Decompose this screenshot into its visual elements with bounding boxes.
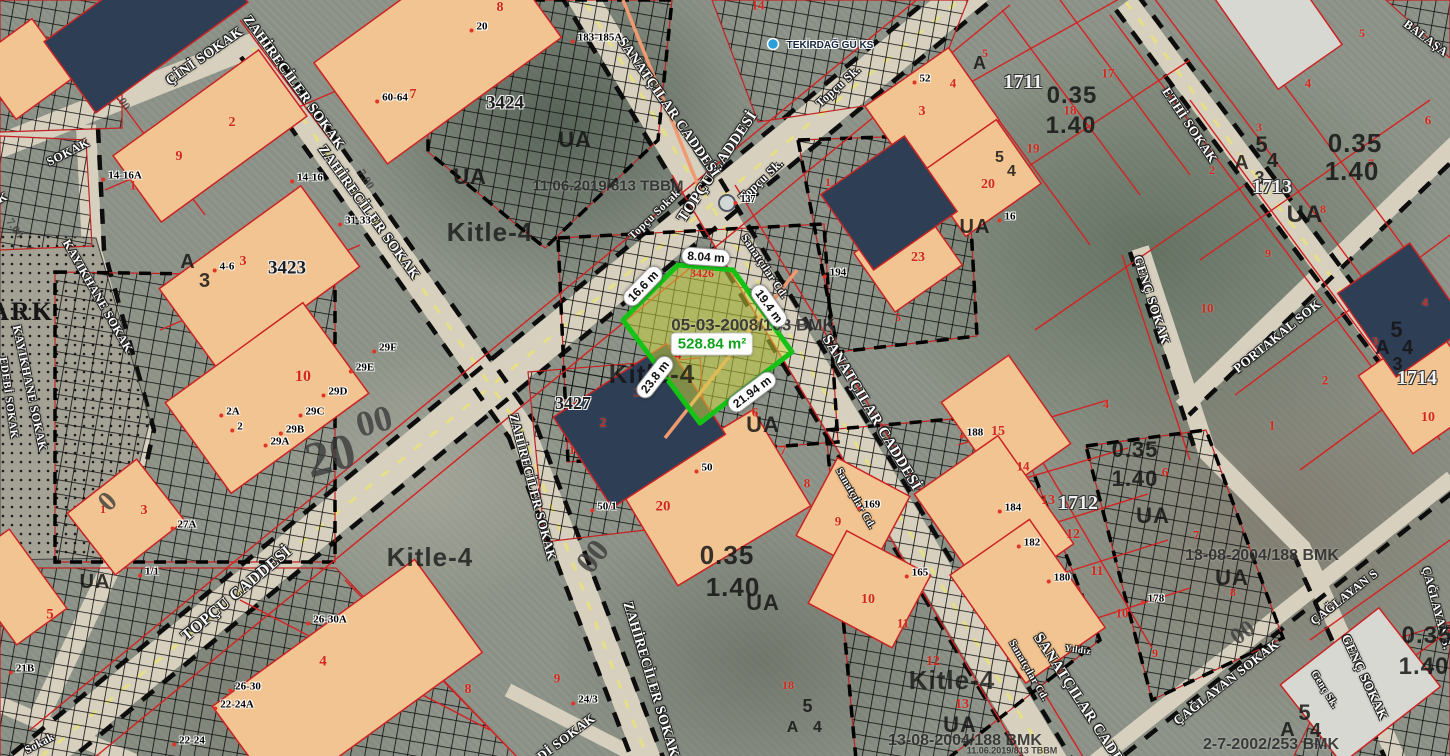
parcel-number: 5 (895, 311, 901, 323)
zoning-label: 1.40 (706, 574, 761, 600)
house-number: 2A (226, 407, 239, 418)
house-number: 50/1 (597, 502, 617, 513)
house-number: 22-24A (220, 700, 254, 711)
block-number: 3423 (268, 259, 306, 278)
parcel-number: 11 (1090, 565, 1103, 579)
parcel-number: 6 (1425, 114, 1432, 127)
zoning-label: A (1234, 153, 1249, 173)
zoning-label: UA (960, 217, 991, 237)
house-number: 137 (741, 195, 756, 205)
approval-annotation: 2-7-2002/253 BMK (1203, 737, 1339, 753)
parcel-number: 5 (1359, 27, 1365, 39)
house-number: 29D (329, 387, 348, 398)
parcel-number: 9 (176, 150, 183, 164)
zoning-label: 0.35 (1112, 439, 1159, 461)
parcel-number: 13 (1041, 494, 1055, 508)
house-number: 52 (920, 74, 931, 85)
house-number: 29E (356, 363, 374, 374)
house-number: 165 (912, 568, 929, 579)
parcel-number: 3 (240, 255, 247, 269)
house-number: 4-6 (220, 262, 235, 273)
poi-label: TEKİRDAĞ GÜ KS (787, 41, 874, 51)
parcel-number: 10 (295, 369, 311, 385)
block-number: 1714 (1397, 368, 1437, 388)
house-number: 60-64 (382, 93, 408, 104)
parcel-number: 8 (497, 1, 504, 15)
zoning-label: UA (80, 572, 111, 592)
house-number: 29C (306, 407, 325, 418)
zoning-label: A (1375, 338, 1390, 358)
kitle-label: Kitle-4 (447, 219, 533, 245)
house-number: 29A (271, 437, 290, 448)
parcel-number: 14 (1017, 460, 1030, 473)
house-number: 169 (864, 500, 881, 511)
parcel-number: 1 (825, 176, 831, 188)
kitle-label: Kitle-4 (909, 667, 995, 693)
zoning-label: 1.40 (1325, 158, 1380, 184)
block-number: 1713 (1252, 177, 1292, 197)
parcel-number: 10 (1201, 302, 1214, 315)
approval-annotation: 05-03-2008/103 BMK (671, 317, 834, 334)
zoning-label: 1.40 (1112, 468, 1159, 490)
parcel-number: 4 (319, 655, 327, 670)
house-number: 50 (702, 463, 713, 474)
zoning-label: 5 (802, 697, 813, 715)
house-number: 178 (1148, 594, 1165, 605)
zoning-label: UA (746, 414, 780, 436)
zoning-label: UA (1287, 203, 1324, 227)
parcel-number: 20 (981, 178, 995, 192)
parcel-number: 8 (465, 683, 472, 697)
zoning-label: 4 (813, 720, 823, 736)
zoning-label: 0.35 (1328, 130, 1383, 156)
parcel-number: 10 (1421, 411, 1435, 425)
poi-blue-dot-icon[interactable] (768, 39, 779, 50)
parcel-area-badge: 528.84 m² (672, 334, 752, 355)
parcel-number: 11 (897, 617, 909, 630)
parcel-number: 2 (600, 416, 607, 429)
zoning-label: UA (1136, 505, 1170, 527)
zoning-label: 0.35 (1402, 624, 1450, 648)
parcel-number: 6 (1162, 466, 1169, 479)
parcel-number: 15 (991, 425, 1005, 439)
parcel-number: 9 (1152, 647, 1158, 659)
zoning-label: 5 (995, 150, 1005, 166)
parcel-number: 7 (780, 444, 787, 457)
parcel-number: 4 (1422, 296, 1428, 308)
parcel-number: 12 (1066, 528, 1080, 542)
cadastral-map-canvas[interactable]: ÇİNİ SOKAKZAHİRECİLER SOKAKZAHİRECİLER S… (0, 0, 1450, 756)
block-number: 1712 (1058, 493, 1098, 513)
house-number: 16 (1005, 212, 1016, 223)
parcel-number: 3426 (690, 267, 714, 279)
house-number: 182 (1024, 538, 1041, 549)
parcel-number: 19 (1027, 142, 1040, 155)
zoning-label: UA (1215, 567, 1249, 589)
house-number: 188 (967, 428, 984, 439)
parcel-number: 9 (835, 515, 842, 528)
parcel-number: 23 (911, 251, 925, 265)
parcel-number: 7 (410, 88, 417, 102)
house-number: 194 (830, 268, 847, 279)
parcel-number: 2 (1322, 374, 1329, 387)
house-number: 20 (477, 22, 488, 33)
block-number: 3424 (486, 94, 524, 113)
parcel-number: 7 (1193, 529, 1200, 542)
house-number: 14-16 (297, 173, 323, 184)
parcel-number: 10 (1116, 607, 1129, 620)
zoning-label: A (180, 252, 195, 272)
block-number: 1711 (1004, 72, 1043, 92)
zoning-label: A (787, 720, 800, 736)
zoning-label: 1.40 (1046, 114, 1097, 138)
house-number: 27A (178, 520, 197, 531)
parcel-number: 10 (861, 593, 875, 607)
approval-annotation: 11.06.2019/813 TBBM (967, 747, 1058, 756)
measurement-label: 8.04 m (681, 246, 731, 267)
zoning-label: 4 (1007, 164, 1017, 180)
parcel-number: 9 (1265, 247, 1271, 259)
house-number: 184 (1005, 503, 1022, 514)
zoning-label: 4 (1402, 338, 1414, 358)
house-number: 14-16A (108, 171, 142, 182)
zoning-label: 3 (199, 271, 211, 291)
zoning-label: UA (453, 166, 487, 188)
zoning-label: 0.35 (700, 542, 755, 568)
house-number: 26-30 (235, 682, 261, 693)
parcel-number: 4 (950, 77, 957, 90)
house-number: 180 (1054, 573, 1071, 584)
parcel-number: 3 (919, 105, 926, 119)
parcel-number: 2 (1209, 164, 1215, 176)
house-number: 21B (16, 664, 34, 675)
house-number: 26-30A (313, 615, 347, 626)
approval-annotation: 11.06.2019/813 TBBM (533, 179, 684, 194)
zoning-label: 0.35 (1047, 84, 1098, 108)
block-number: 3427 (555, 394, 591, 412)
parcel-number: 5 (46, 608, 54, 623)
zoning-label: 1.40 (1399, 655, 1450, 679)
parcel-number: 13 (955, 698, 969, 712)
parcel-number: 9 (554, 672, 561, 685)
parcel-number: 1 (1269, 419, 1276, 432)
parcel-number: 2 (229, 116, 236, 130)
map-base-layer (0, 0, 1450, 756)
park-label: PARK (0, 299, 54, 325)
house-number: 183-185A (578, 33, 623, 44)
parcel-number: 20 (656, 500, 671, 515)
house-number: 31-33 (345, 216, 371, 227)
house-number: 2 (237, 422, 243, 433)
zoning-label: UA (558, 129, 592, 151)
house-number: 24/3 (578, 695, 598, 706)
parcel-number: 17 (1102, 67, 1115, 80)
zoning-label: A (973, 54, 987, 72)
house-number: 29F (379, 343, 397, 354)
zoning-label: 4 (1267, 151, 1279, 171)
parcel-number: 14 (752, 0, 765, 12)
parcel-number: 1 (569, 444, 575, 456)
parcel-number: 4 (1305, 77, 1312, 90)
house-number: 22-24 (179, 736, 205, 747)
approval-annotation: 13-08-2004/188 BMK (1185, 548, 1339, 564)
house-number: 1/1 (145, 567, 159, 578)
parcel-number: 4 (1103, 398, 1109, 410)
parcel-number: 18 (782, 679, 794, 691)
parcel-number: 8 (804, 477, 811, 490)
kitle-label: Kitle-4 (387, 544, 473, 570)
parcel-number: 3 (141, 504, 148, 518)
